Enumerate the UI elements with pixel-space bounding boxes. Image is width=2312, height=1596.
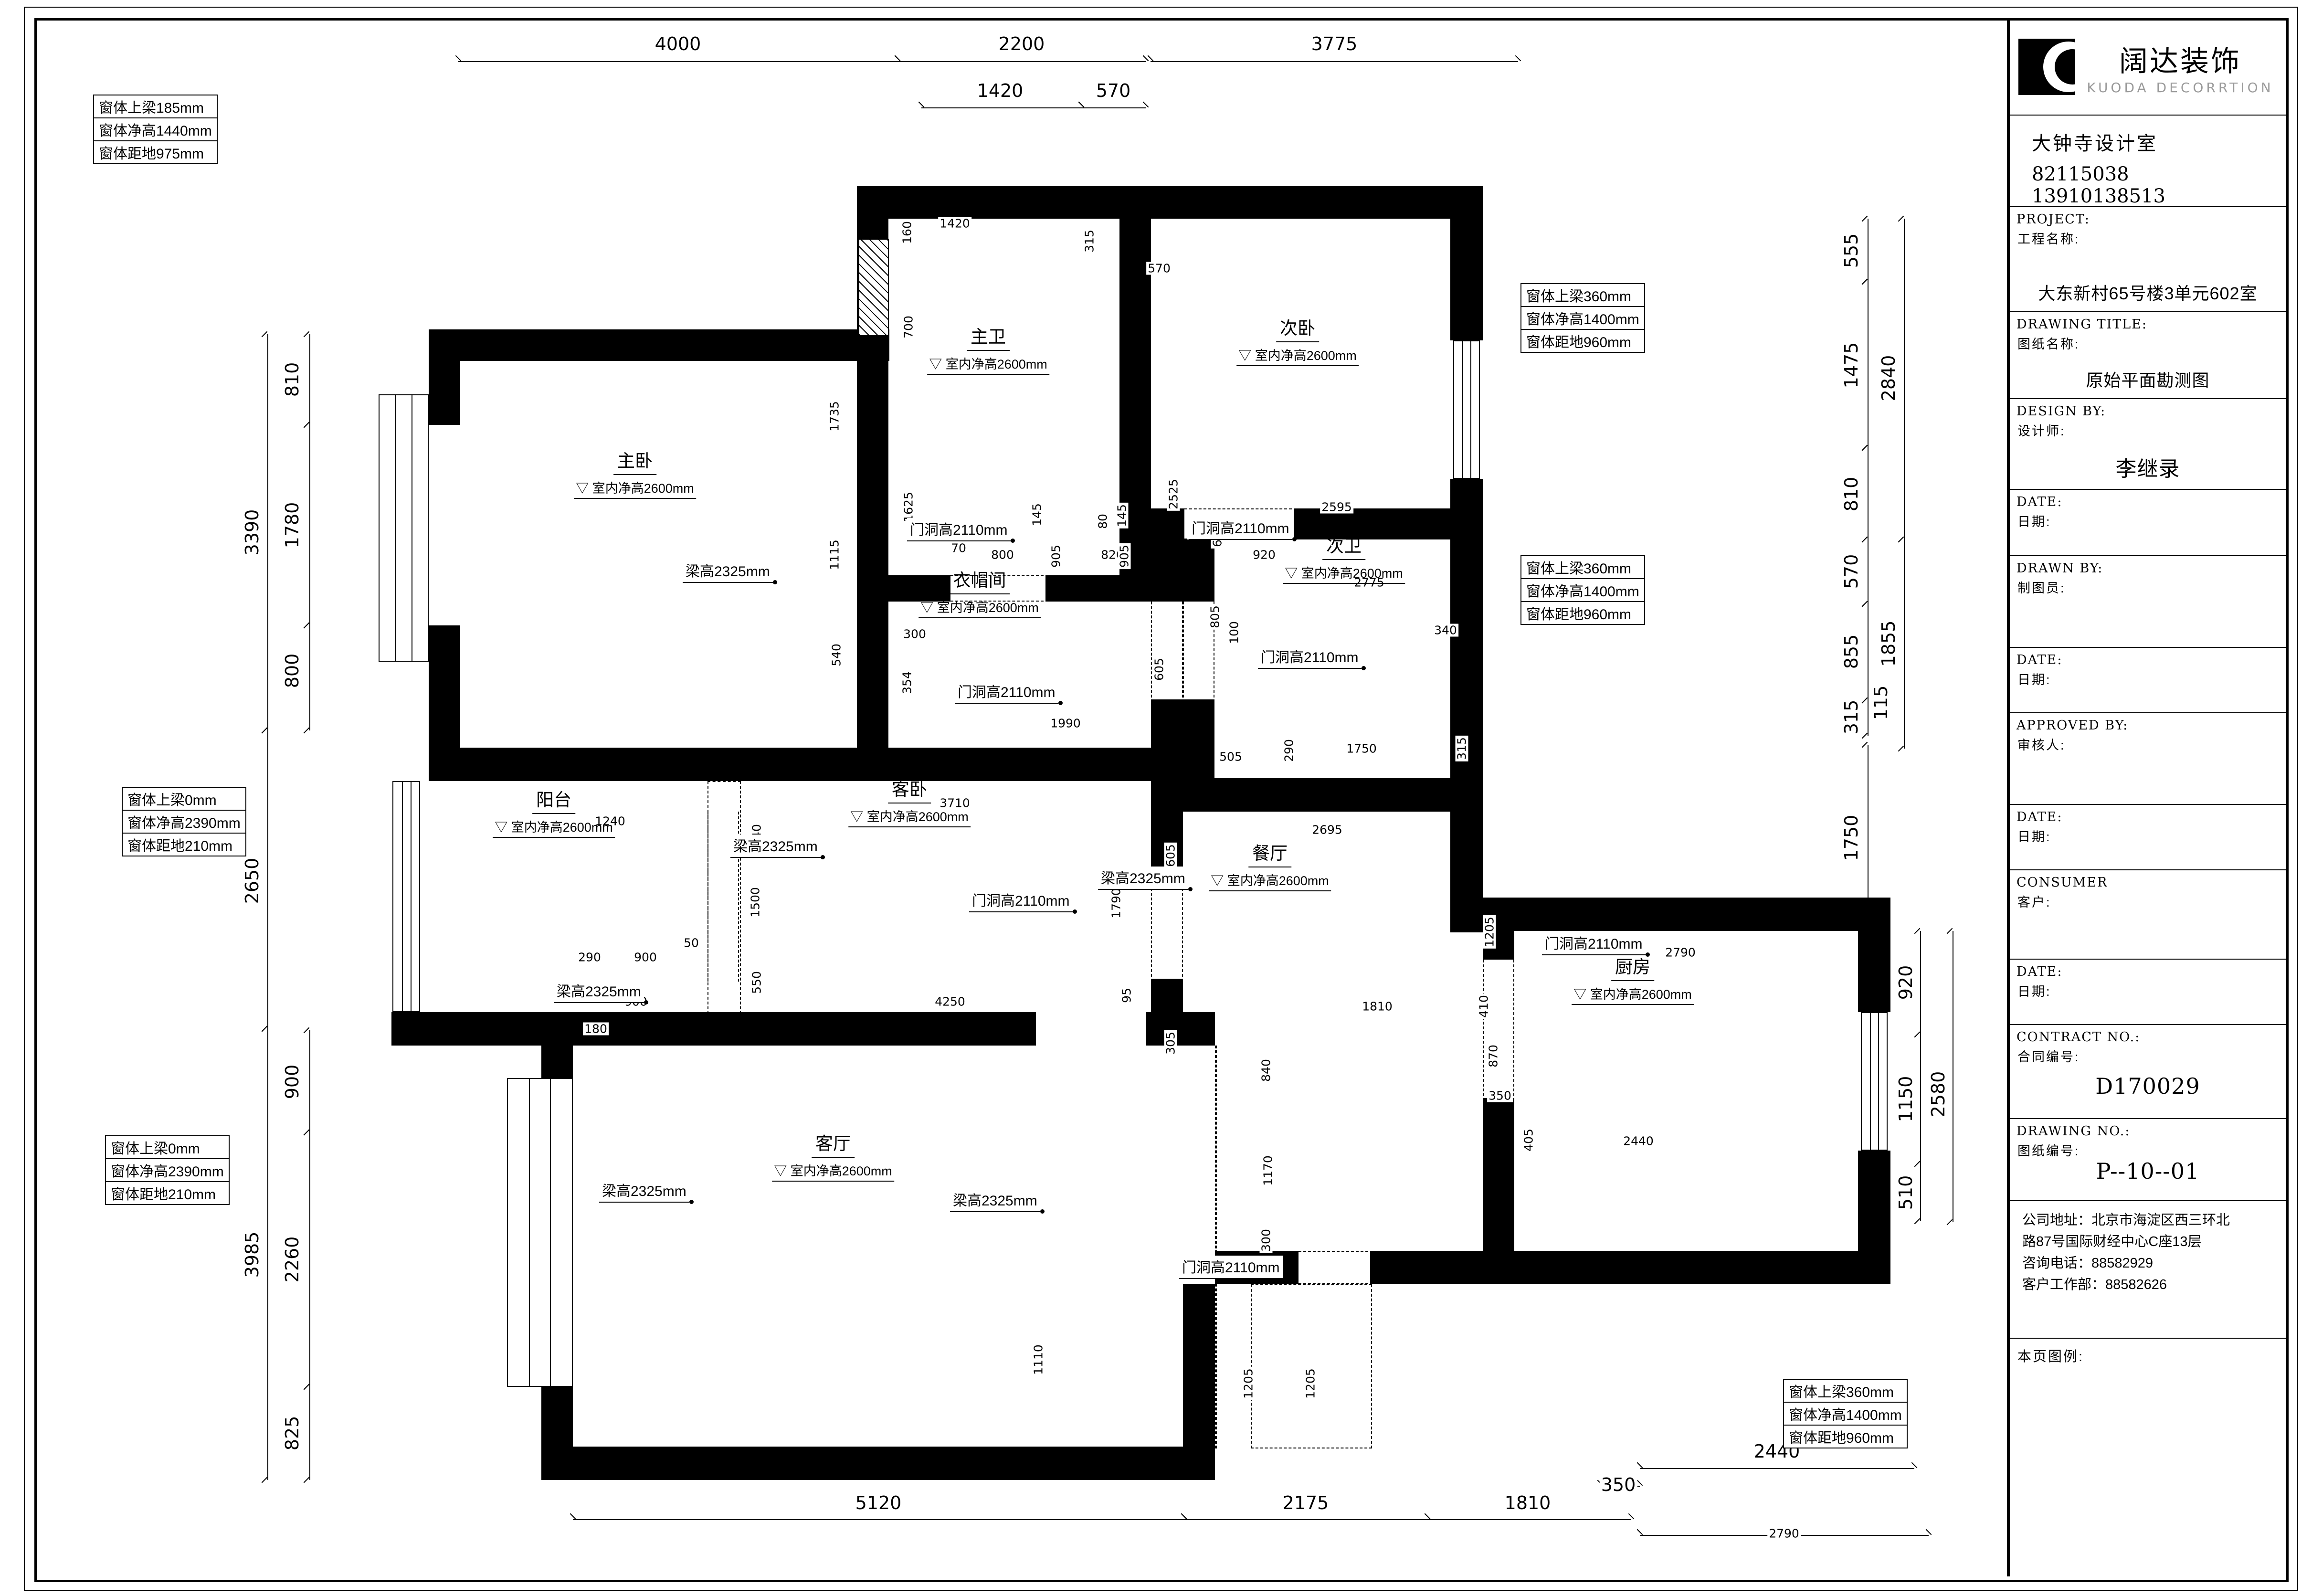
room-label: 次卫▽ 室内净高2600mm	[1283, 531, 1405, 584]
tb-label-cn: 图纸名称:	[2010, 332, 2286, 352]
wall	[1146, 1012, 1215, 1046]
tb-label-en: DESIGN BY:	[2010, 399, 2286, 419]
dimension-label: 1780	[283, 501, 302, 550]
window-spec-line: 窗体距地210mm	[122, 833, 246, 856]
dimension-label: 2260	[283, 1235, 302, 1284]
tb-label-en: APPROVED BY:	[2010, 713, 2286, 733]
window-spec-line: 窗体距地210mm	[105, 1181, 230, 1205]
dimension-line	[309, 425, 310, 625]
window-spec-line: 窗体距地960mm	[1520, 601, 1645, 625]
window	[392, 781, 420, 1012]
dimension-line	[573, 1519, 1184, 1520]
tb-label-cn: 图纸编号:	[2010, 1139, 2286, 1159]
dimension-label: 180	[583, 1023, 609, 1036]
dimension-line	[1151, 61, 1518, 62]
beam-height-note: 梁高2325mm	[950, 1189, 1040, 1212]
dimension-label: 805	[1209, 604, 1222, 630]
title-block-office-row: 大钟寺设计室 82115038 13910138513	[2010, 116, 2286, 207]
tb-row-date-1: DATE: 日期:	[2010, 490, 2286, 556]
dimension-line	[309, 334, 310, 425]
dimension-line	[1904, 539, 1905, 749]
door-opening	[1151, 602, 1183, 698]
dimension-label: 550	[750, 970, 763, 995]
dimension-label: 1990	[1049, 717, 1082, 730]
dimension-line	[1953, 931, 1953, 1222]
wall	[1045, 575, 1151, 602]
company-phone: 咨询电话：88582929	[2022, 1253, 2286, 1274]
tb-label-en: DATE:	[2010, 805, 2286, 824]
tb-row-drawing-title: DRAWING TITLE: 图纸名称: 原始平面勘测图	[2010, 312, 2286, 399]
dimension-label: 2525	[1167, 477, 1180, 511]
room-name: 衣帽间	[950, 566, 1010, 594]
wall	[1151, 539, 1183, 602]
room-ceiling-height: ▽ 室内净高2600mm	[1236, 345, 1359, 366]
dimension-label: 315	[1083, 228, 1096, 254]
dimension-label: 145	[1116, 503, 1129, 528]
dimension-label: 4250	[933, 995, 967, 1008]
dimension-line	[309, 1132, 310, 1387]
dashed-line	[1251, 1284, 1372, 1448]
dimension-label: 1750	[1345, 742, 1378, 755]
dimension-line	[1427, 1519, 1631, 1520]
dimension-label: 2840	[1879, 354, 1898, 403]
wall	[429, 329, 889, 361]
dimension-line	[1640, 1468, 1914, 1469]
dimension-label: 570	[1146, 262, 1172, 275]
window-spec-line: 窗体距地975mm	[93, 140, 218, 164]
dimension-line	[897, 61, 1146, 62]
window-spec-line: 窗体距地960mm	[1520, 329, 1645, 353]
dimension-label: 810	[1842, 476, 1861, 513]
door-height-note: 门洞高2110mm	[907, 518, 1011, 541]
room-name: 厨房	[1611, 952, 1654, 981]
tb-label-en: CONTRACT NO.:	[2010, 1025, 2286, 1045]
floor-plan: 4000220037751420570512021751810244035027…	[0, 0, 2007, 1596]
dimension-label: 315	[1842, 698, 1861, 736]
dimension-line	[1868, 282, 1869, 448]
room-label: 衣帽间▽ 室内净高2600mm	[918, 566, 1041, 618]
dimension-line	[921, 107, 1081, 108]
dimension-label: 145	[1031, 502, 1044, 528]
wall	[1151, 508, 1184, 539]
dimension-label: 5120	[854, 1493, 903, 1512]
window-spec-line: 窗体净高1400mm	[1520, 306, 1645, 330]
dimension-label: 350	[1600, 1475, 1637, 1494]
room-ceiling-height: ▽ 室内净高2600mm	[1572, 984, 1694, 1005]
window-glazing-line	[550, 1079, 551, 1386]
dimension-line	[1920, 1164, 1921, 1221]
dimension-label: 1115	[828, 538, 841, 571]
window-spec-line: 窗体净高1400mm	[1783, 1402, 1908, 1426]
window-spec-line: 窗体上梁0mm	[122, 787, 246, 811]
wall	[573, 1012, 1036, 1046]
window-spec-line: 窗体距地960mm	[1783, 1425, 1908, 1448]
dimension-line	[458, 61, 897, 62]
tb-label-en: DRAWING TITLE:	[2010, 312, 2286, 332]
designer-name: 李继录	[2010, 452, 2286, 482]
window-spec-line: 窗体上梁185mm	[93, 95, 218, 118]
dimension-label: 570	[1842, 553, 1861, 591]
room-label: 厨房▽ 室内净高2600mm	[1572, 952, 1694, 1005]
dimension-line	[1868, 219, 1869, 282]
room-ceiling-height: ▽ 室内净高2600mm	[927, 354, 1049, 375]
phone-1: 82115038	[2032, 163, 2129, 185]
window-spec-line: 窗体上梁360mm	[1520, 555, 1645, 579]
room-name: 阳台	[532, 785, 575, 814]
window-glazing-line	[1462, 341, 1463, 478]
dimension-label: 3775	[1310, 34, 1359, 53]
door-height-note: 门洞高2110mm	[969, 889, 1073, 912]
window	[379, 394, 429, 662]
window-spec-line: 窗体净高1440mm	[93, 117, 218, 141]
dimension-label: 2595	[1320, 501, 1353, 514]
dimension-line	[309, 1030, 310, 1132]
dimension-label: 405	[1522, 1127, 1535, 1153]
tb-label-en: PROJECT:	[2010, 207, 2286, 227]
dimension-label: 540	[830, 642, 843, 668]
dimension-label: 3390	[243, 508, 262, 557]
dimension-line	[1868, 448, 1869, 539]
room-ceiling-height: ▽ 室内净高2600mm	[493, 817, 615, 838]
dimension-label: 1810	[1361, 1000, 1394, 1013]
dimension-label: 1790	[1110, 887, 1123, 920]
drawing-title: 原始平面勘测图	[2010, 367, 2286, 391]
door-height-note: 门洞高2110mm	[1179, 1256, 1283, 1279]
dimension-label: 905	[1050, 543, 1063, 569]
dimension-label: 920	[1896, 964, 1915, 1002]
dimension-line	[1920, 931, 1921, 1035]
window-spec-line: 窗体净高2390mm	[122, 810, 246, 834]
window-spec-note: 窗体上梁360mm窗体净高1400mm窗体距地960mm	[1783, 1380, 1908, 1448]
dimension-label: 510	[1896, 1174, 1915, 1212]
dimension-line	[267, 730, 268, 1029]
window-spec-note: 窗体上梁360mm窗体净高1400mm窗体距地960mm	[1520, 284, 1645, 353]
dimension-label: 100	[1228, 620, 1241, 645]
kuoda-logo-icon	[2018, 39, 2075, 95]
wall	[391, 1012, 573, 1046]
tb-label-cn: 客户:	[2010, 890, 2286, 910]
dimension-label: 300	[902, 628, 928, 641]
window-glazing-line	[402, 782, 403, 1011]
dimension-label: 505	[1218, 750, 1244, 763]
dimension-label: 1735	[828, 400, 841, 433]
legend-label: 本页图例:	[2010, 1339, 2286, 1365]
design-office: 大钟寺设计室	[2010, 116, 2286, 156]
dimension-label: 1420	[938, 217, 971, 230]
dimension-label: 1810	[1503, 1493, 1552, 1512]
dimension-label: 900	[283, 1063, 302, 1101]
window-glazing-line	[529, 1079, 530, 1386]
room-name: 主卧	[613, 446, 656, 475]
contract-number: D170029	[2010, 1073, 2286, 1099]
company-service-phone: 客户工作部：88582626	[2022, 1274, 2286, 1296]
dimension-line	[1184, 1519, 1427, 1520]
wall	[1183, 778, 1483, 812]
dimension-label: 290	[577, 951, 602, 964]
dimension-line	[1868, 745, 1869, 933]
dimension-line	[1081, 107, 1146, 108]
tb-row-contract-no: CONTRACT NO.: 合同编号: D170029	[2010, 1025, 2286, 1119]
window-spec-note: 窗体上梁185mm窗体净高1440mm窗体距地975mm	[93, 95, 218, 164]
dimension-label: 350	[1487, 1089, 1513, 1102]
room-name: 次卧	[1276, 314, 1319, 342]
tb-label-cn: 制图员:	[2010, 576, 2286, 596]
room-label: 餐厅▽ 室内净高2600mm	[1209, 839, 1331, 891]
window-spec-line: 窗体上梁360mm	[1520, 283, 1645, 307]
tb-row-company: 公司地址：北京市海淀区西三环北 路87号国际财经中心C座13层 咨询电话：885…	[2010, 1201, 2286, 1339]
room-ceiling-height: ▽ 室内净高2600mm	[772, 1161, 894, 1182]
dimension-line	[1904, 219, 1905, 539]
beam-height-note: 梁高2325mm	[554, 980, 644, 1003]
dimension-line	[1868, 539, 1869, 604]
room-label: 阳台▽ 室内净高2600mm	[493, 785, 615, 838]
dimension-label: 115	[1871, 684, 1890, 722]
dimension-label: 900	[633, 951, 658, 964]
beam-height-note: 梁高2325mm	[599, 1179, 689, 1203]
dimension-label: 1855	[1879, 619, 1898, 668]
tb-label-cn: 设计师:	[2010, 419, 2286, 439]
dimension-label: 340	[1433, 624, 1458, 637]
dimension-label: 2175	[1281, 1493, 1330, 1512]
room-ceiling-height: ▽ 室内净高2600mm	[1283, 563, 1405, 584]
flue-hatch	[858, 239, 889, 336]
door-height-note: 门洞高2110mm	[1542, 932, 1646, 955]
dimension-label: 1475	[1842, 341, 1861, 390]
wall	[1183, 1284, 1215, 1480]
tb-row-date-3: DATE: 日期:	[2010, 805, 2286, 870]
wall	[1450, 219, 1483, 340]
tb-label-cn: 日期:	[2010, 979, 2286, 1000]
dashed-line	[1215, 1046, 1217, 1448]
tb-label-cn: 日期:	[2010, 667, 2286, 688]
office-phones: 82115038 13910138513	[2010, 156, 2286, 207]
tb-row-date-2: DATE: 日期:	[2010, 648, 2286, 713]
company-address-line1: 公司地址：北京市海淀区西三环北	[2022, 1210, 2286, 1231]
tb-row-project: PROJECT: 工程名称: 大东新村65号楼3单元602室	[2010, 207, 2286, 312]
dimension-line	[309, 625, 310, 730]
wall	[1370, 1251, 1890, 1284]
room-label: 客卧▽ 室内净高2600mm	[848, 775, 971, 827]
wall	[1450, 813, 1483, 932]
room-name: 餐厅	[1248, 839, 1291, 867]
window-spec-note: 窗体上梁360mm窗体净高1400mm窗体距地960mm	[1520, 556, 1645, 625]
dimension-label: 800	[990, 549, 1015, 561]
dimension-label: 1205	[1304, 1367, 1317, 1400]
dimension-label: 2580	[1929, 1070, 1948, 1119]
door-height-note: 门洞高2110mm	[1189, 517, 1292, 540]
dimension-label: 2440	[1622, 1135, 1655, 1148]
dimension-label: 70	[950, 542, 968, 555]
window-spec-line: 窗体上梁360mm	[1783, 1379, 1908, 1403]
dimension-label: 410	[1478, 994, 1490, 1019]
wall	[857, 186, 1483, 219]
dimension-label: 1150	[1896, 1075, 1915, 1124]
beam-height-note: 梁高2325mm	[683, 560, 773, 583]
room-label: 主卫▽ 室内净高2600mm	[927, 322, 1049, 375]
window-glazing-line	[412, 395, 412, 661]
door-height-note: 门洞高2110mm	[1258, 645, 1362, 669]
room-ceiling-height: ▽ 室内净高2600mm	[1209, 870, 1331, 891]
room-ceiling-height: ▽ 室内净高2600mm	[574, 478, 696, 499]
dimension-line	[267, 334, 268, 730]
window-glazing-line	[395, 395, 396, 661]
dimension-label: 1750	[1842, 814, 1861, 863]
wall	[573, 1447, 1215, 1480]
beam-height-note: 梁高2325mm	[1098, 867, 1188, 890]
dimension-label: 1170	[1262, 1154, 1275, 1187]
tb-row-design-by: DESIGN BY: 设计师: 李继录	[2010, 399, 2286, 490]
dimension-label: 1500	[749, 886, 762, 919]
tb-label-cn: 工程名称:	[2010, 227, 2286, 247]
door-height-note: 门洞高2110mm	[955, 680, 1058, 704]
dimension-label: 1110	[1032, 1343, 1045, 1376]
dimension-label: 50	[682, 937, 700, 950]
beam-height-note: 梁高2325mm	[730, 835, 821, 858]
door-opening	[1483, 960, 1514, 1096]
brand-name-en: KUODA DECORRTION	[2075, 80, 2286, 95]
window-glazing-line	[411, 782, 412, 1011]
tb-row-drawing-no: DRAWING NO.: 图纸编号: P--10--01	[2010, 1119, 2286, 1201]
logo-text: 阔达装饰 KUODA DECORRTION	[2075, 38, 2286, 95]
dimension-label: 160	[901, 220, 914, 245]
dimension-label: 2790	[1767, 1527, 1801, 1540]
tb-label-en: DRAWN BY:	[2010, 556, 2286, 576]
dimension-label: 825	[283, 1415, 302, 1452]
door-opening	[1299, 1251, 1368, 1284]
dimension-label: 290	[1283, 738, 1296, 763]
tb-label-en: DRAWING NO.:	[2010, 1119, 2286, 1139]
dashed-line	[707, 781, 741, 1014]
wall	[1151, 979, 1183, 1012]
room-ceiling-height: ▽ 室内净高2600mm	[918, 597, 1041, 618]
wall	[429, 748, 1193, 781]
wall	[1151, 699, 1183, 781]
window-glazing-line	[1470, 341, 1471, 478]
tb-label-en: DATE:	[2010, 648, 2286, 667]
dimension-label: 4000	[654, 34, 703, 53]
drawing-sheet: 4000220037751420570512021751810244035027…	[0, 0, 2312, 1596]
tb-row-legend: 本页图例:	[2010, 1339, 2286, 1576]
room-label: 次卧▽ 室内净高2600mm	[1236, 314, 1359, 366]
dimension-line	[1920, 1035, 1921, 1164]
room-name: 客厅	[812, 1129, 855, 1158]
window-spec-line: 窗体净高1400mm	[1520, 578, 1645, 602]
window-glazing-line	[1870, 1013, 1871, 1150]
window	[507, 1078, 573, 1387]
tb-label-cn: 日期:	[2010, 824, 2286, 845]
dimension-label: 855	[1842, 633, 1861, 671]
wall	[429, 329, 460, 425]
dimension-label: 920	[1251, 549, 1277, 561]
dimension-label: 95	[1120, 986, 1133, 1004]
tb-label-cn: 合同编号:	[2010, 1045, 2286, 1065]
company-address-line2: 路87号国际财经中心C座13层	[2022, 1231, 2286, 1253]
dimension-label: 1205	[1242, 1367, 1255, 1400]
window-spec-line: 窗体净高2390mm	[105, 1158, 230, 1182]
dimension-label: 3985	[243, 1230, 262, 1279]
window	[1861, 1012, 1888, 1151]
phone-2: 13910138513	[2032, 185, 2165, 207]
project-name: 大东新村65号楼3单元602室	[2010, 280, 2286, 305]
window	[1453, 340, 1480, 479]
dimension-label: 300	[1260, 1227, 1273, 1253]
dimension-label: 315	[1456, 736, 1468, 761]
window-spec-note: 窗体上梁0mm窗体净高2390mm窗体距地210mm	[105, 1136, 230, 1205]
brand-name: 阔达装饰	[2075, 38, 2286, 80]
title-block: 阔达装饰 KUODA DECORRTION 大钟寺设计室 82115038 13…	[2007, 19, 2286, 1576]
room-label: 主卧▽ 室内净高2600mm	[574, 446, 696, 499]
dimension-label: 555	[1842, 232, 1861, 270]
room-name: 客卧	[888, 775, 931, 803]
dimension-label: 1420	[976, 81, 1025, 100]
dimension-label: 354	[901, 670, 914, 696]
tb-label-cn: 日期:	[2010, 509, 2286, 530]
wall	[1483, 898, 1890, 931]
dimension-line	[267, 1029, 268, 1480]
dimension-line	[1868, 700, 1869, 736]
room-ceiling-height: ▽ 室内净高2600mm	[848, 806, 971, 827]
dimension-label: 800	[283, 652, 302, 690]
window-spec-note: 窗体上梁0mm窗体净高2390mm窗体距地210mm	[122, 788, 246, 856]
wall	[1183, 539, 1214, 602]
dimension-label: 80	[1097, 512, 1109, 530]
dimension-label: 1205	[1483, 915, 1496, 949]
dimension-label: 605	[1153, 656, 1166, 682]
tb-row-approved-by: APPROVED BY: 审核人:	[2010, 713, 2286, 805]
window-glazing-line	[1878, 1013, 1879, 1150]
tb-label-cn: 审核人:	[2010, 733, 2286, 753]
wall	[1183, 699, 1214, 778]
tb-row-date-4: DATE: 日期:	[2010, 960, 2286, 1025]
dimension-label: 840	[1260, 1057, 1273, 1083]
tb-row-consumer: CONSUMER 客户:	[2010, 870, 2286, 960]
room-label: 客厅▽ 室内净高2600mm	[772, 1129, 894, 1182]
dimension-label: 2695	[1310, 824, 1344, 836]
dimension-label: 2650	[243, 856, 262, 906]
drawing-number: P--10--01	[2010, 1158, 2286, 1184]
dimension-label: 305	[1164, 1030, 1177, 1056]
tb-label-en: DATE:	[2010, 960, 2286, 979]
room-name: 主卫	[967, 322, 1010, 351]
tb-row-drawn-by: DRAWN BY: 制图员:	[2010, 556, 2286, 648]
dimension-label: 570	[1095, 81, 1132, 100]
dimension-label: 870	[1487, 1043, 1500, 1069]
dimension-line	[309, 1387, 310, 1480]
dimension-label: 905	[1118, 543, 1131, 569]
dimension-line	[1868, 604, 1869, 700]
title-block-logo-row: 阔达装饰 KUODA DECORRTION	[2010, 19, 2286, 116]
wall	[1858, 931, 1890, 1012]
dimension-label: 2200	[997, 34, 1046, 53]
tb-label-en: CONSUMER	[2010, 870, 2286, 890]
dimension-label: 810	[283, 361, 302, 399]
dimension-label: 700	[902, 314, 915, 340]
room-name: 次卫	[1322, 531, 1365, 560]
tb-label-en: DATE:	[2010, 490, 2286, 509]
window-spec-line: 窗体上梁0mm	[105, 1135, 230, 1159]
